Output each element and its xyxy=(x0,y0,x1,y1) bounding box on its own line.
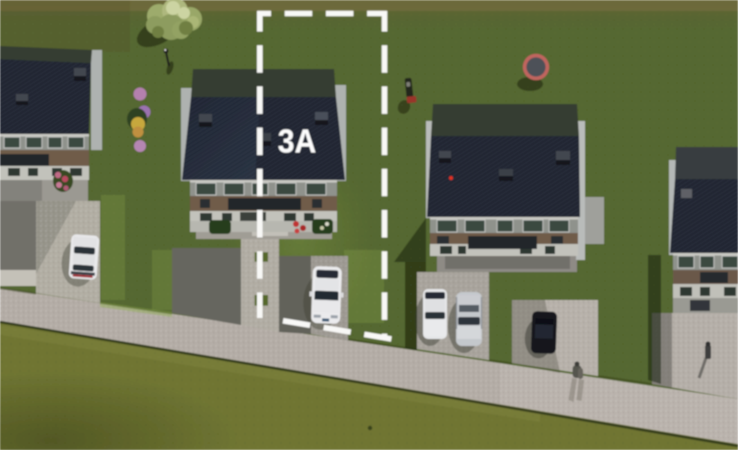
svg-text:3A: 3A xyxy=(278,122,317,159)
